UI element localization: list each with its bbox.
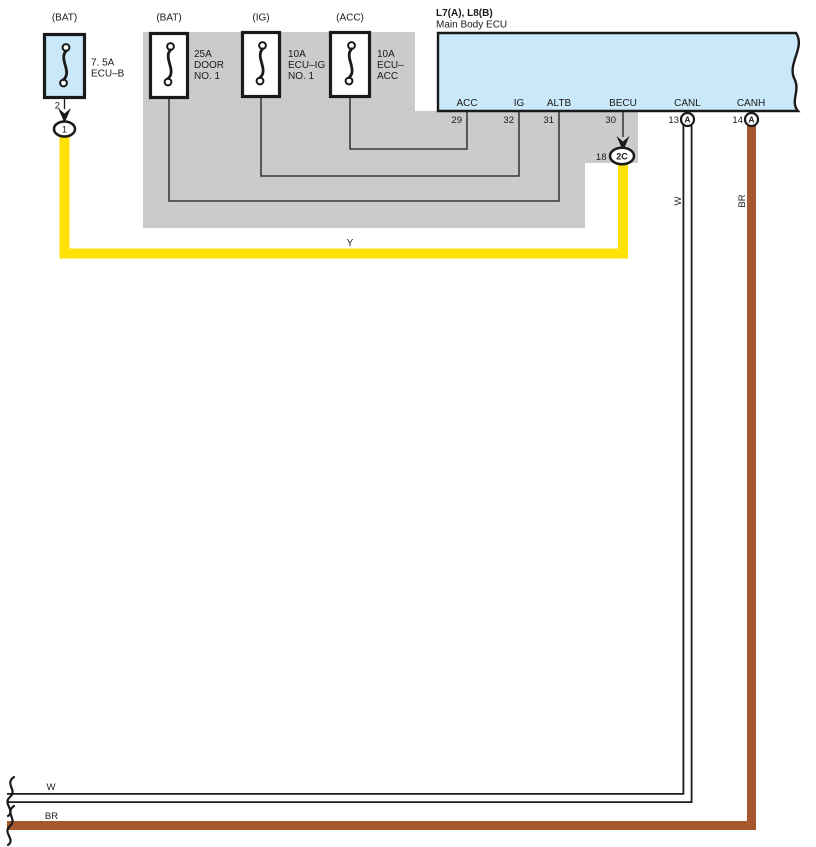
pin-label-ig: IG (514, 98, 525, 109)
connector-letter-canh: A (748, 115, 754, 125)
fuse-ecu-acc-name2: ACC (377, 71, 398, 82)
connector-letter-canl: A (684, 115, 690, 125)
wire-canh-brown (7, 126, 752, 826)
pin-label-altb: ALTB (547, 98, 572, 109)
fuse-ecu-b-name: ECU–B (91, 69, 125, 80)
pin-label-acc: ACC (456, 98, 477, 109)
pin-number-32: 32 (503, 115, 514, 126)
junction-2c-pin-number: 18 (596, 152, 607, 163)
wire-color-label-y: Y (347, 238, 354, 249)
fuse-ecu-acc (331, 33, 370, 97)
pin-number-29: 29 (451, 115, 462, 126)
fuse-door-no1-name2: NO. 1 (194, 71, 221, 82)
wire-color-label-br: BR (737, 194, 748, 207)
pin-label-canh: CANH (737, 98, 765, 109)
fuse-ecu-ig-name1: ECU–IG (288, 60, 325, 71)
pin-number-14: 14 (732, 115, 743, 126)
fuse-door-no1 (151, 34, 188, 98)
wire-color-label-w-bottom: W (47, 782, 56, 793)
pin-number-30: 30 (605, 115, 616, 126)
pin-label-becu: BECU (609, 98, 637, 109)
pin-number-31: 31 (543, 115, 554, 126)
ecu-name: Main Body ECU (436, 20, 507, 31)
junction-2c-label: 2C (616, 152, 628, 162)
fuse-ecu-acc-source-label: (ACC) (336, 13, 364, 24)
junction-1-pin-number: 2 (55, 101, 60, 112)
wiring-diagram: (BAT) (BAT) (IG) (ACC) 7. 5A ECU–B 25A D… (0, 0, 816, 847)
fuse-ecu-ig (243, 33, 280, 97)
fuse-ecu-acc-name1: ECU– (377, 60, 404, 71)
wire-color-label-br-bottom: BR (45, 811, 58, 822)
fuse-ecu-ig-rating: 10A (288, 49, 306, 60)
ecu-reference-code: L7(A), L8(B) (436, 8, 493, 19)
fuse-door-no1-source-label: (BAT) (156, 13, 181, 24)
fuse-ecu-b-source-label: (BAT) (52, 13, 77, 24)
fuse-ecu-b-rating: 7. 5A (91, 58, 115, 69)
fuse-door-no1-name1: DOOR (194, 60, 224, 71)
fuse-ecu-ig-source-label: (IG) (252, 13, 269, 24)
fuse-door-no1-rating: 25A (194, 49, 212, 60)
fuse-ecu-ig-name2: NO. 1 (288, 71, 315, 82)
fuse-ecu-b (45, 35, 85, 98)
wire-color-label-w: W (673, 196, 684, 205)
pin-label-canl: CANL (674, 98, 701, 109)
wiring-diagram-page: (BAT) (BAT) (IG) (ACC) 7. 5A ECU–B 25A D… (0, 0, 816, 847)
junction-1-label: 1 (62, 125, 67, 135)
fuse-ecu-acc-rating: 10A (377, 49, 395, 60)
pin-number-13: 13 (668, 115, 679, 126)
